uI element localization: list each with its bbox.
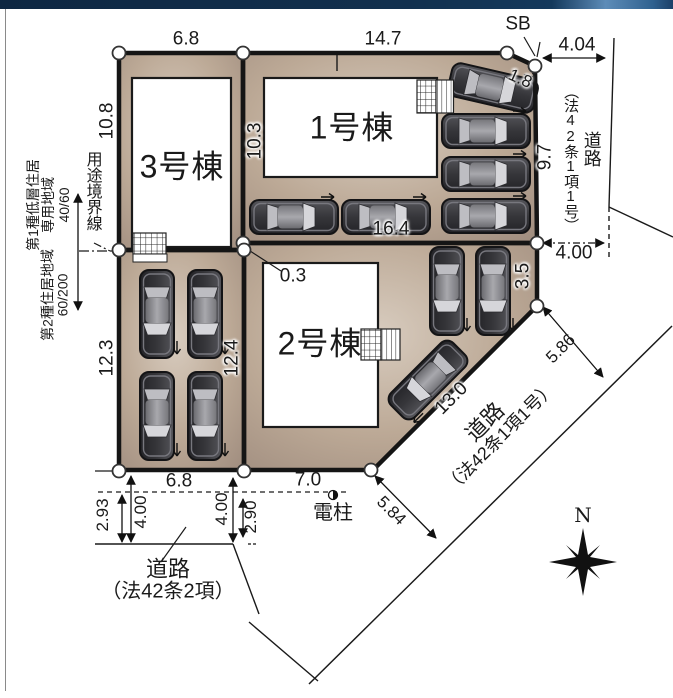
district-upper-ratio: 40/60 [57,159,72,251]
road-bottom-law: （法42条2項） [101,581,234,603]
dim-parking-left-depth: 12.3 [98,340,119,377]
dim-bottom-left-offset: 2.93 [94,498,112,531]
dim-b1-left-depth: 10.3 [246,123,267,160]
zoning-boundary-label: 用途境界線 [83,151,100,231]
building-3-label: 3号棟 [140,150,225,185]
dim-b1-right-depth: 9.7 [536,144,557,170]
dim-b3-left-depth: 10.8 [98,103,119,140]
district-upper-line2: 専用地域 [41,159,56,251]
dim-b1-top-width: 14.7 [365,30,402,51]
district-upper-line1: 第1種低層住居 [26,159,41,251]
site-plan: 3号棟 1号棟 2号棟 6.8 14.7 SB 1.8 4.04 10.8 10… [0,0,673,698]
dim-lot-gap: 0.3 [280,267,306,288]
road-bottom-label: 道路 （法42条2項） [101,557,234,602]
dim-parking-bottom-width: 6.8 [166,472,192,493]
dim-road-right-bottom: 4.00 [556,244,593,265]
setback-label: SB [505,15,530,36]
zoning-district-lower: 第2種住居地域 60/200 [41,249,72,341]
dim-bottom-left-width: 4.00 [132,495,150,528]
compass-north-label: N [574,505,592,527]
utility-pole-label: 電柱 [313,503,353,525]
road-right-law: （法42条1項1号） [562,84,578,232]
dim-b3-top-width: 6.8 [173,30,199,51]
building-2-label: 2号棟 [278,327,363,362]
dim-bottom-right-width: 4.00 [213,492,231,525]
utility-pole-icon [329,491,338,500]
top-banner [0,0,673,9]
dim-lot2-left-depth: 12.4 [223,340,244,377]
building-1-label: 1号棟 [310,111,395,146]
stairs-building-3 [133,233,167,262]
district-lower-ratio: 60/200 [56,249,71,341]
dim-lot2-right-edge: 3.5 [514,263,535,289]
dim-lot2-top-width: 16.4 [373,220,410,241]
dim-bottom-right-offset: 2.90 [242,500,260,533]
dim-road-right-top: 4.04 [559,36,596,57]
road-bottom-name: 道路 [101,557,234,581]
dim-lot2-bottom-width: 7.0 [295,471,321,492]
road-right-name: 道路 [581,131,600,167]
stairs-building-1 [417,80,454,113]
zoning-district-upper: 第1種低層住居 専用地域 40/60 [26,159,72,251]
district-lower-line1: 第2種住居地域 [41,249,56,341]
stairs-building-2 [361,329,400,360]
